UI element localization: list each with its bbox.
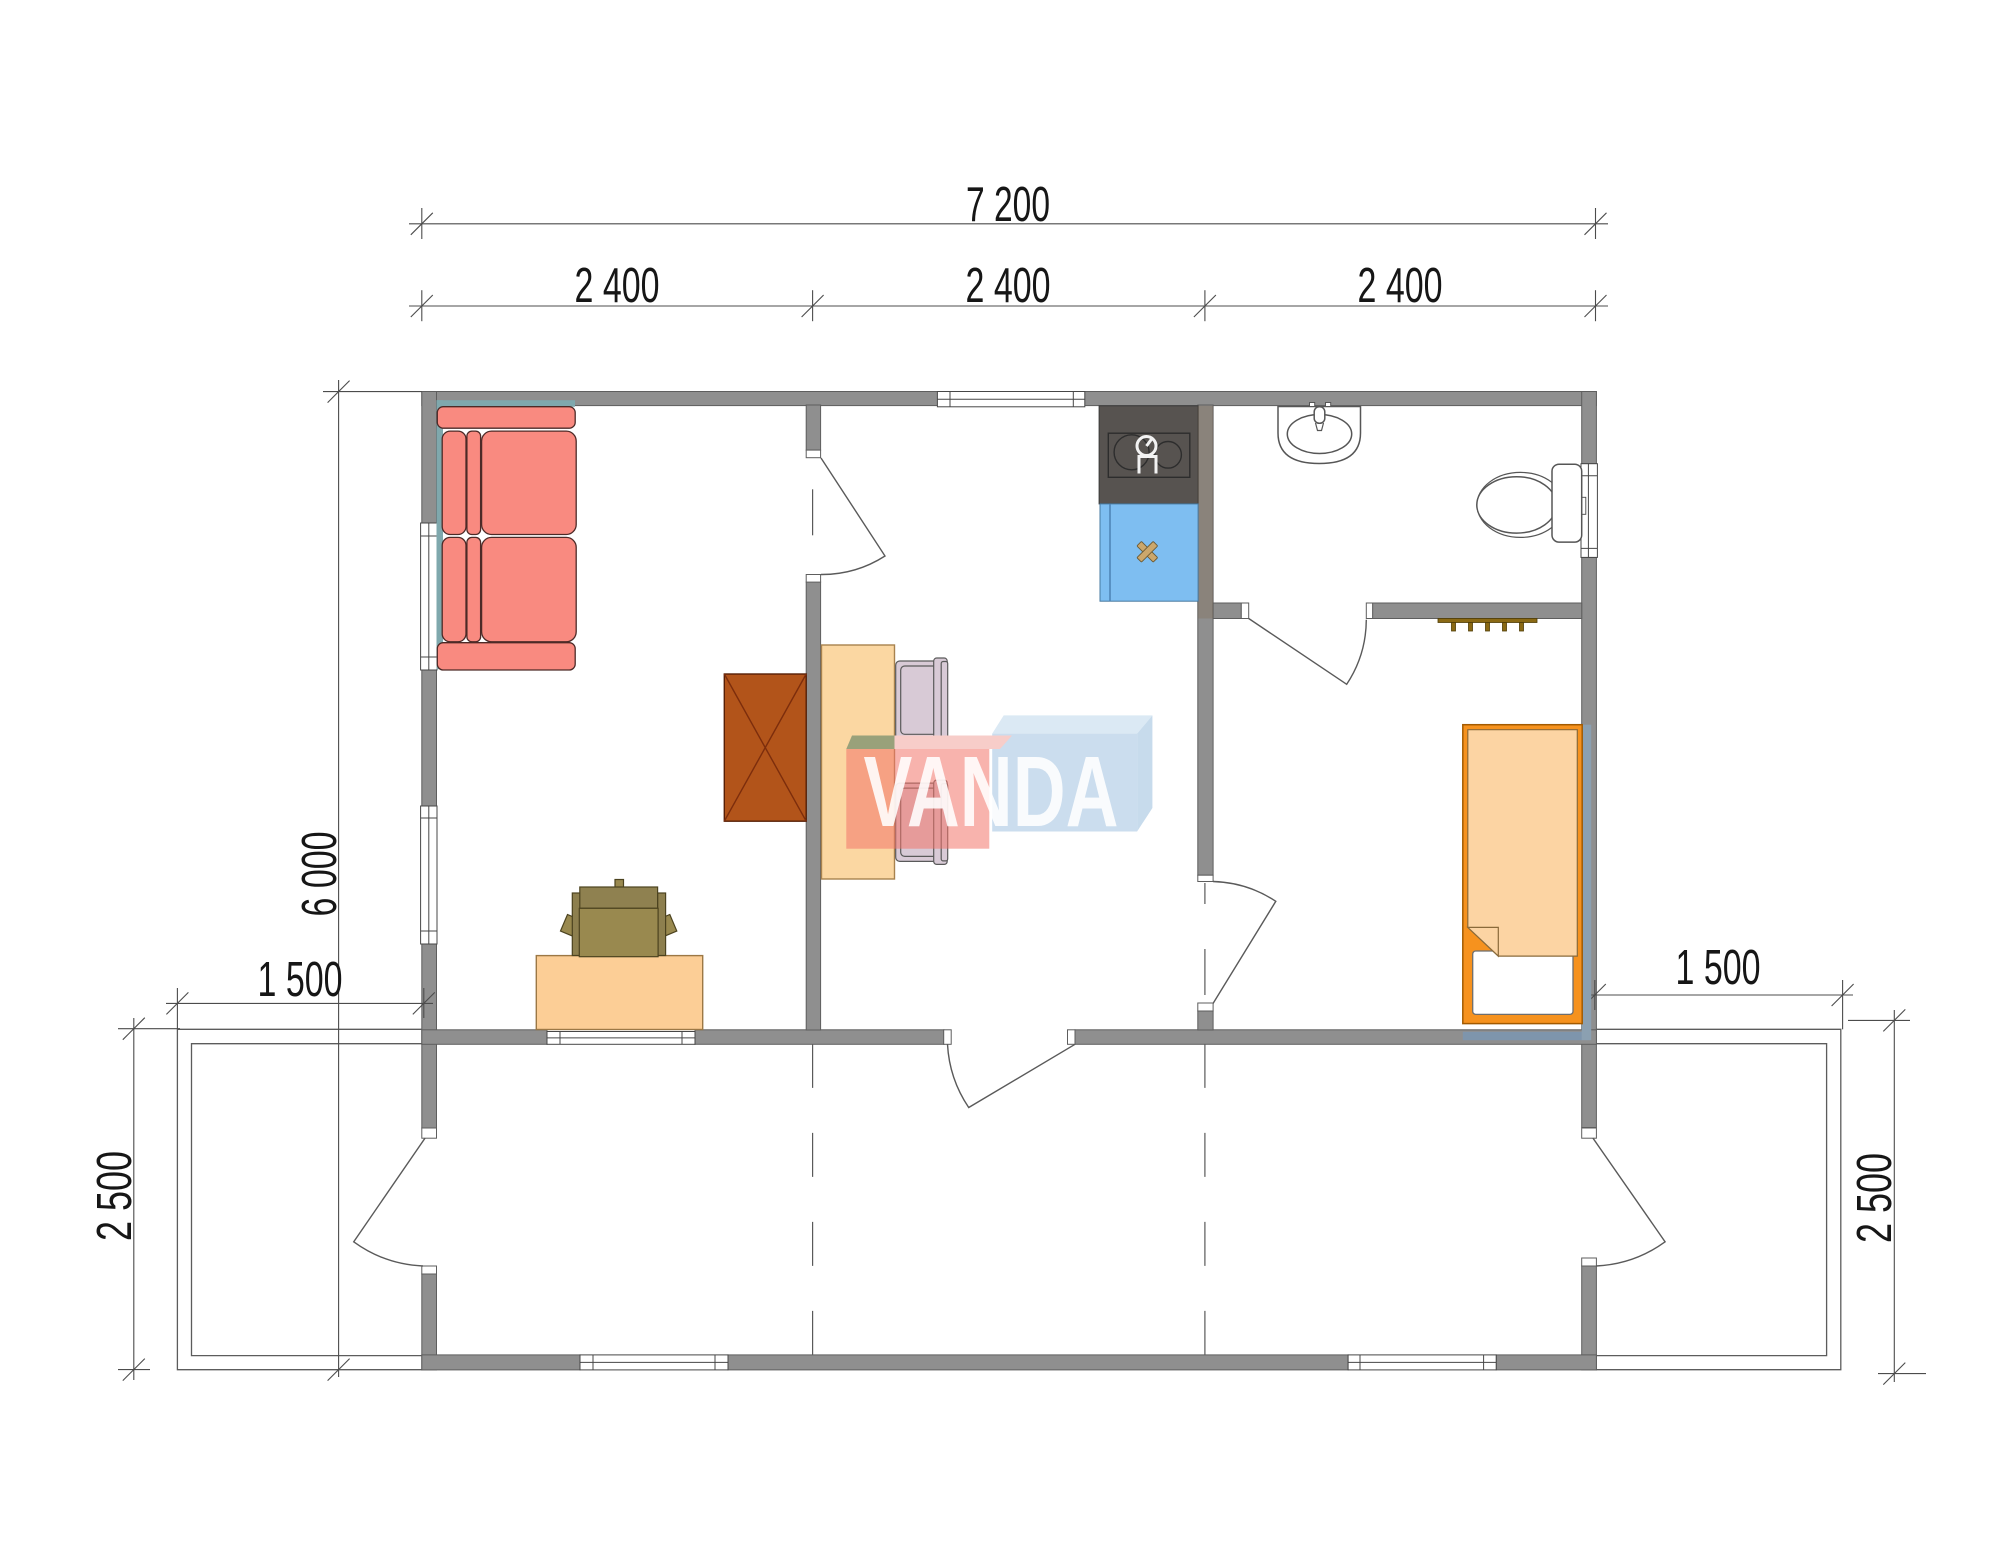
svg-text:6 000: 6 000 (293, 832, 347, 917)
svg-text:1 500: 1 500 (1676, 941, 1761, 995)
svg-text:2 400: 2 400 (1358, 259, 1443, 313)
svg-text:2 500: 2 500 (1848, 1153, 1902, 1243)
svg-text:2 400: 2 400 (966, 259, 1051, 313)
svg-text:VANDA: VANDA (864, 736, 1119, 848)
svg-text:2 500: 2 500 (88, 1151, 142, 1241)
svg-text:7 200: 7 200 (966, 178, 1050, 232)
svg-text:2 400: 2 400 (575, 259, 660, 313)
svg-text:1 500: 1 500 (258, 953, 343, 1007)
